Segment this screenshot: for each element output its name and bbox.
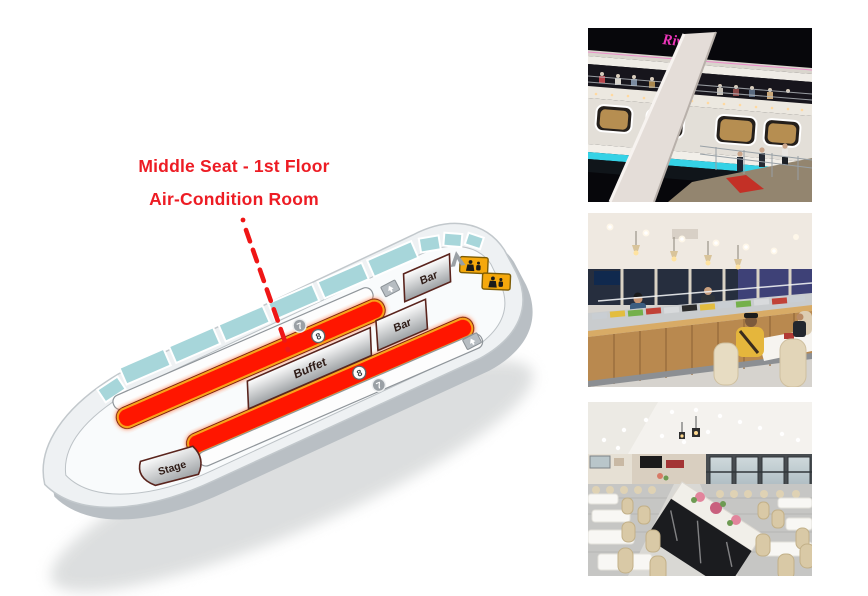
chair-cover — [714, 343, 738, 385]
photo-cruise-exterior-night: River Star Princess — [588, 28, 812, 202]
photo-dining-room — [588, 402, 812, 576]
photo-dining-illustration — [588, 402, 812, 576]
photo-exterior-illustration: River Star Princess — [588, 28, 812, 202]
chair-cover — [780, 339, 806, 387]
window — [443, 233, 462, 247]
photo-buffet-interior — [588, 213, 812, 387]
photo-buffet-illustration — [588, 213, 812, 387]
tv-screen — [640, 456, 662, 468]
tv-screen — [594, 271, 620, 285]
toilet-sign-icon — [482, 273, 511, 290]
infographic-canvas: Middle Seat - 1st Floor Air-Condition Ro… — [0, 0, 868, 596]
deck-plan-diagram: Buffet Bar Bar Stage 7 — [0, 0, 560, 596]
window — [419, 235, 441, 252]
